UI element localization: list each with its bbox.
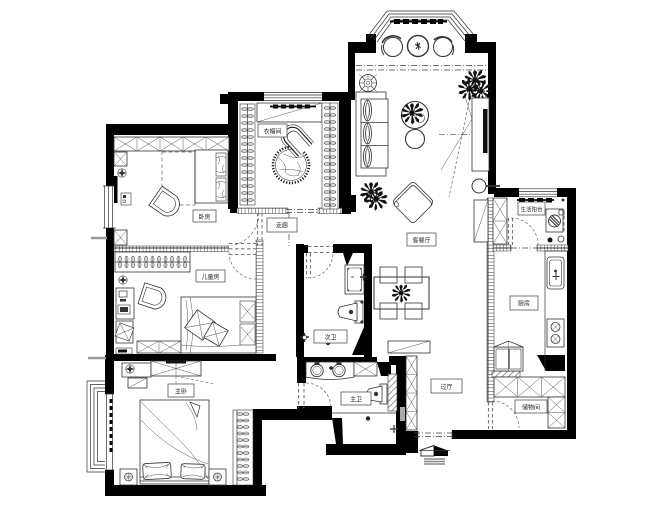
svg-text:走廊: 走廊 [276,222,288,230]
svg-text:厨房: 厨房 [518,300,530,308]
svg-text:储物间: 储物间 [522,404,540,412]
svg-text:主卫: 主卫 [350,396,362,404]
svg-text:次卫: 次卫 [324,334,336,342]
svg-text:儿童房: 儿童房 [201,273,219,281]
svg-text:过厅: 过厅 [440,383,452,391]
svg-text:卧房: 卧房 [198,213,210,221]
svg-text:生活阳台: 生活阳台 [520,206,543,214]
svg-text:衣帽间: 衣帽间 [263,128,281,136]
svg-text:主卧: 主卧 [175,388,187,396]
svg-text:客餐厅: 客餐厅 [412,237,430,245]
